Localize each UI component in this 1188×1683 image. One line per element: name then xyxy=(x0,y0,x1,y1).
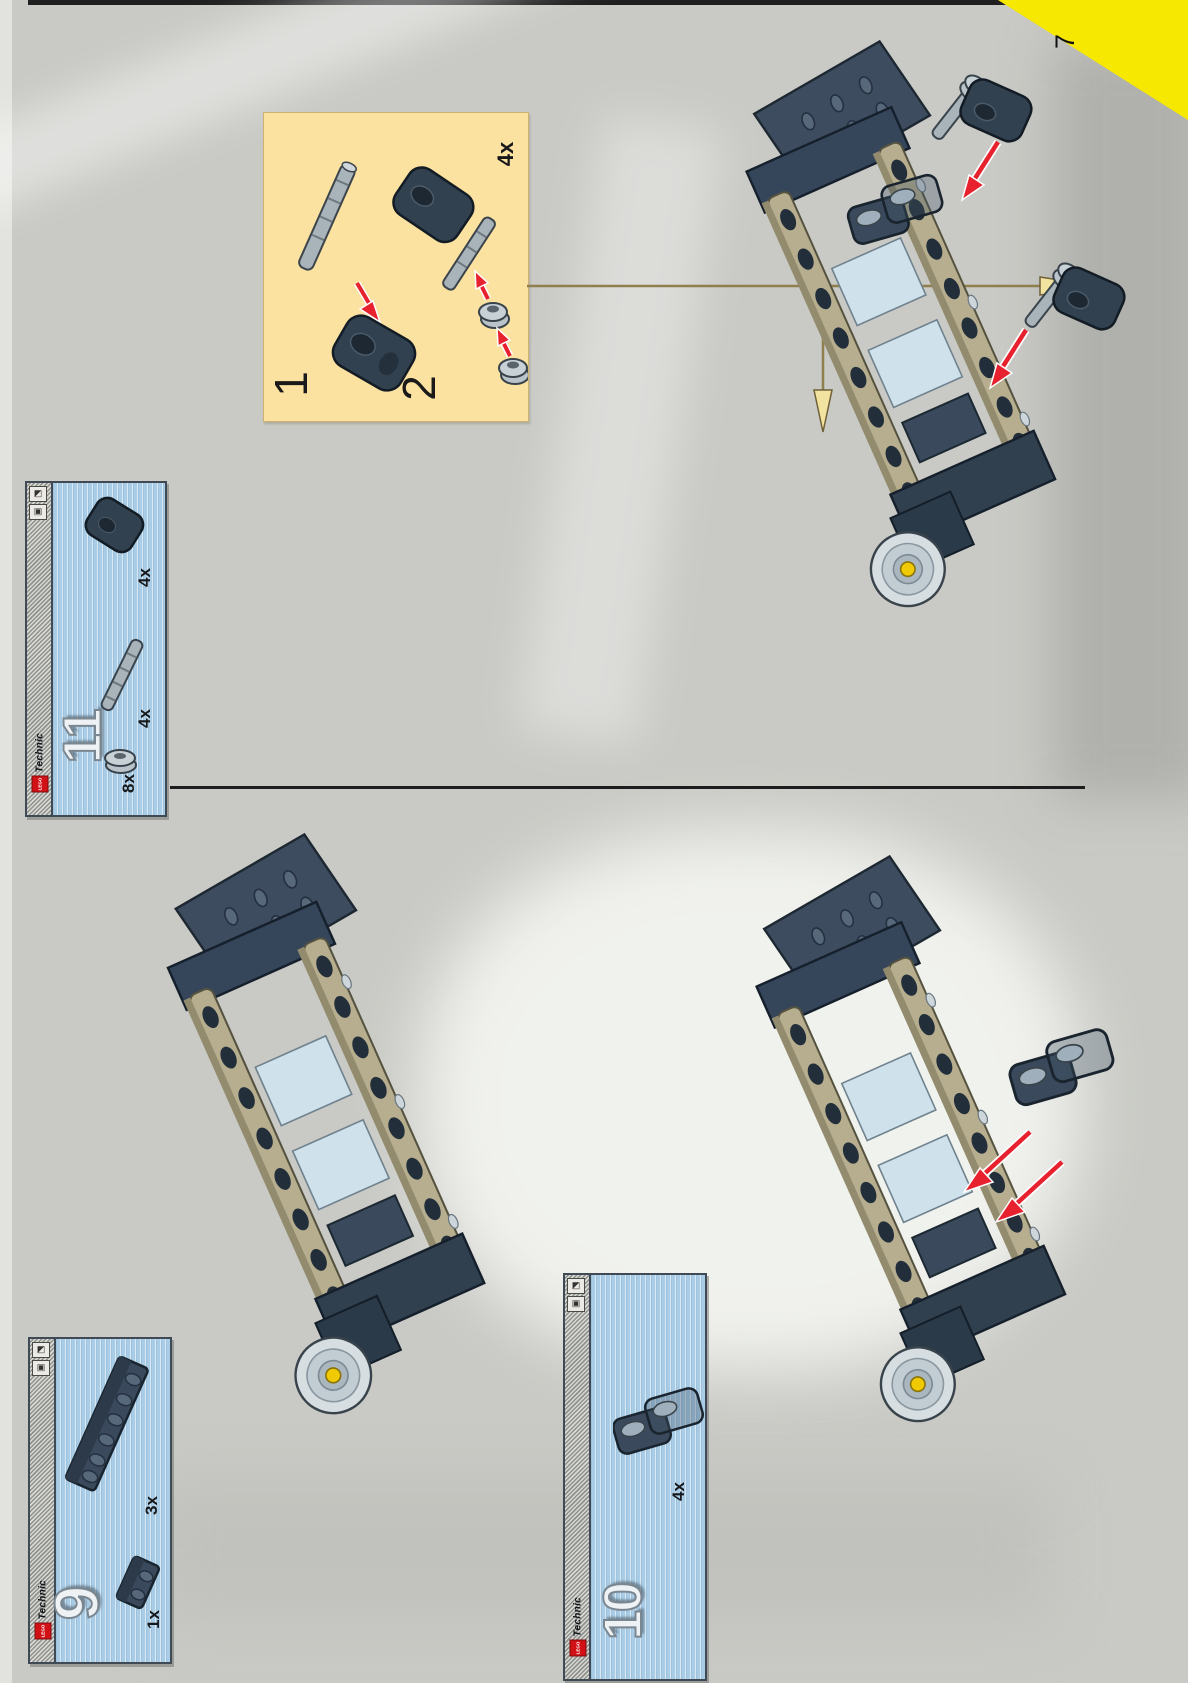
edge-pictogram-icon: ▣ xyxy=(32,1360,50,1376)
assembly-step-10-diagram xyxy=(700,850,1140,1510)
step-number: 10 xyxy=(596,1584,650,1640)
part-quantity: 4x xyxy=(136,709,153,728)
technic-wordmark: Technic xyxy=(35,733,46,773)
manual-page: 1 2 4x xyxy=(0,0,1188,1683)
page-corner-tab xyxy=(998,0,1188,120)
step-number: 9 xyxy=(47,1588,109,1620)
part-catch-connector xyxy=(613,1375,705,1475)
floating-subassembly xyxy=(1019,260,1129,334)
brand-block: LEGO Technic xyxy=(570,1579,587,1657)
assembly-step-9-diagram xyxy=(150,840,550,1460)
part-axle xyxy=(97,633,147,717)
lego-logo: LEGO xyxy=(32,776,49,793)
part-quantity: 8x xyxy=(120,774,137,793)
box-edge-strip: ◩ ▣ LEGO Technic xyxy=(565,1275,591,1679)
part-brick-1x2 xyxy=(110,1551,164,1613)
parts-box-step-10: ◩ ▣ LEGO Technic 4x 10 xyxy=(563,1273,707,1681)
edge-pictogram-icon: ◩ xyxy=(29,486,47,502)
part-brick-1x6 xyxy=(64,1351,150,1501)
step-number: 11 xyxy=(56,710,110,763)
edge-pictogram-icon: ◩ xyxy=(32,1342,50,1358)
assembly-step-11-diagram xyxy=(690,30,1160,680)
part-quantity: 1x xyxy=(145,1610,162,1629)
part-quantity: 4x xyxy=(670,1482,687,1501)
floating-catch-connector xyxy=(1007,1027,1115,1107)
red-arrow-icon xyxy=(962,142,998,200)
part-angle-connector xyxy=(79,491,145,569)
edge-pictogram-icon: ▣ xyxy=(29,504,47,520)
edge-pictogram-icon: ◩ xyxy=(567,1278,585,1294)
technic-wordmark: Technic xyxy=(573,1597,584,1637)
lego-logo: LEGO xyxy=(570,1640,587,1657)
parts-box-step-9: ◩ ▣ LEGO Technic 3x xyxy=(28,1337,172,1664)
part-quantity: 4x xyxy=(136,568,153,587)
edge-pictogram-icon: ▣ xyxy=(567,1296,585,1312)
box-edge-strip: ◩ ▣ LEGO Technic xyxy=(27,483,53,815)
lego-logo: LEGO xyxy=(35,1623,52,1640)
part-quantity: 3x xyxy=(143,1496,160,1515)
page-number: 7 xyxy=(1052,34,1079,49)
brand-block: LEGO Technic xyxy=(32,715,49,793)
parts-box-step-11: ◩ ▣ LEGO Technic 4x 4x xyxy=(25,481,167,817)
